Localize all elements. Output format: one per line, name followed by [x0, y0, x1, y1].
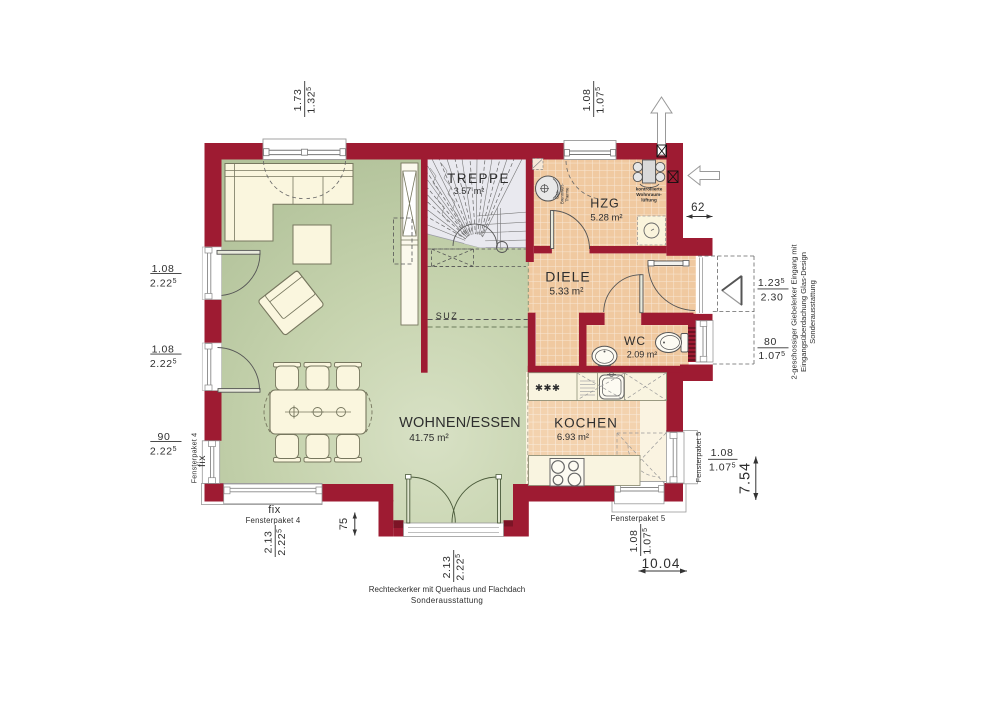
- svg-text:7.54: 7.54: [738, 462, 754, 494]
- svg-text:Fensterpaket 5: Fensterpaket 5: [611, 514, 666, 523]
- svg-text:SUZ: SUZ: [436, 311, 459, 321]
- svg-text:2.09 m²: 2.09 m²: [627, 350, 658, 360]
- svg-text:lüftung: lüftung: [641, 198, 657, 203]
- svg-text:6.93 m²: 6.93 m²: [557, 432, 589, 443]
- svg-text:1.08: 1.08: [628, 530, 640, 553]
- svg-text:3.57 m²: 3.57 m²: [454, 186, 485, 196]
- svg-text:✱: ✱: [552, 383, 560, 394]
- svg-text:DIELE: DIELE: [545, 269, 590, 285]
- svg-text:Eingangsüberdachung Glas-Desig: Eingangsüberdachung Glas-Design: [799, 252, 808, 372]
- svg-text:✱: ✱: [544, 383, 552, 394]
- svg-text:1.08: 1.08: [581, 89, 593, 112]
- svg-text:Fensterpaket 4: Fensterpaket 4: [246, 516, 301, 525]
- svg-text:Rechteckerker mit Querhaus und: Rechteckerker mit Querhaus und Flachdach: [369, 585, 526, 594]
- svg-text:62: 62: [691, 202, 705, 214]
- svg-text:2-geschossiger Giebelerker Ein: 2-geschossiger Giebelerker Eingang mit: [790, 244, 799, 380]
- svg-text:Wohnraum-: Wohnraum-: [636, 192, 662, 197]
- svg-text:TREPPE: TREPPE: [447, 171, 510, 186]
- svg-text:1.73: 1.73: [292, 89, 304, 112]
- svg-text:10.04: 10.04: [642, 556, 681, 571]
- svg-text:✱: ✱: [535, 383, 543, 394]
- svg-text:Sonderausstattung: Sonderausstattung: [808, 280, 817, 344]
- svg-text:Therme: Therme: [565, 187, 570, 202]
- svg-text:75: 75: [338, 518, 350, 530]
- svg-text:Sonderausstattung: Sonderausstattung: [411, 596, 483, 605]
- svg-text:Fensterpaket 5: Fensterpaket 5: [694, 432, 703, 483]
- svg-text:fix: fix: [268, 504, 281, 516]
- svg-text:fix: fix: [196, 455, 208, 467]
- svg-text:41.75 m²: 41.75 m²: [409, 433, 449, 444]
- svg-text:2.13: 2.13: [263, 531, 275, 554]
- svg-text:80: 80: [764, 336, 777, 348]
- svg-text:2.30: 2.30: [761, 292, 784, 304]
- svg-text:KOCHEN: KOCHEN: [554, 416, 618, 431]
- svg-text:kontrollierte: kontrollierte: [636, 187, 663, 192]
- svg-text:WOHNEN/ESSEN: WOHNEN/ESSEN: [399, 415, 521, 431]
- svg-text:2.13: 2.13: [441, 556, 453, 579]
- svg-text:1.08: 1.08: [711, 447, 734, 459]
- svg-text:5.33 m²: 5.33 m²: [550, 287, 585, 298]
- svg-text:5.28 m²: 5.28 m²: [590, 213, 622, 224]
- svg-text:HZG: HZG: [590, 197, 619, 211]
- svg-text:WC: WC: [624, 334, 646, 348]
